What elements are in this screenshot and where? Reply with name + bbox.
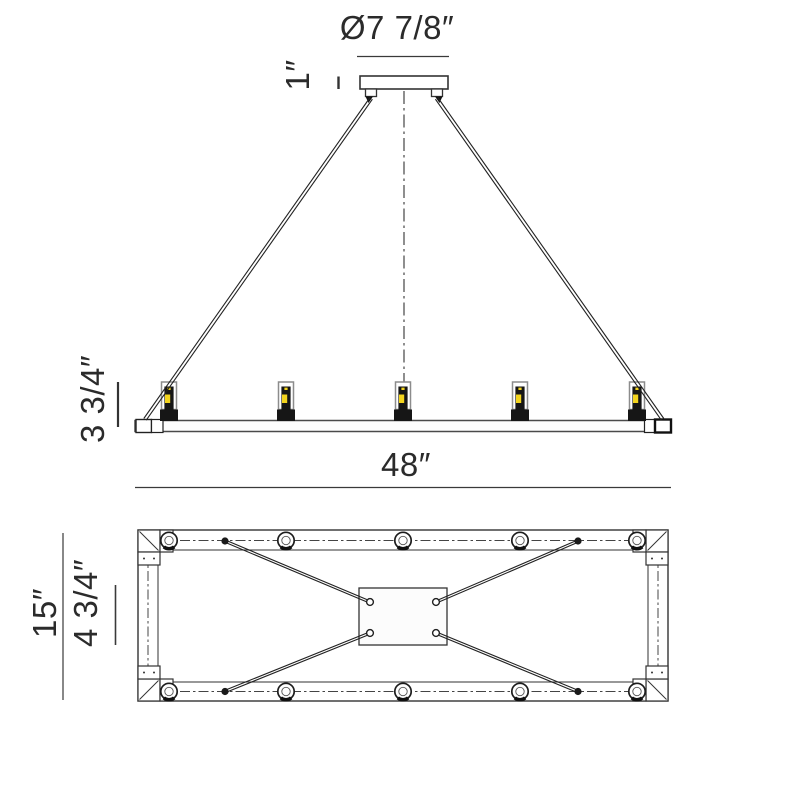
rail-anchor-dot-top-left	[221, 537, 228, 544]
end-cap-right-inner	[645, 420, 656, 433]
frame-depth-label: 15″	[26, 588, 63, 638]
grommet-top-2	[278, 532, 294, 548]
end-cap-right-outer	[655, 420, 671, 433]
grommet-bottom-2	[278, 683, 294, 699]
plate-depth-label: 4 3/4″	[67, 559, 104, 647]
lamp-4	[511, 382, 529, 421]
plate-anchor-bottom-right	[433, 630, 440, 637]
fixture-height-label: 3 3/4″	[74, 355, 111, 443]
end-cap-left-outer	[136, 420, 152, 433]
grommet-bottom-4	[512, 683, 528, 699]
technical-drawing: Ø7 7/8″ 1″ 3 3/4″	[0, 0, 800, 800]
plate-anchor-bottom-left	[367, 630, 374, 637]
grommet-top-3	[395, 532, 411, 548]
fixture-bar	[135, 421, 671, 432]
plan-view: 15″ 4 3/4″	[26, 530, 668, 701]
drawing-stage: Ø7 7/8″ 1″ 3 3/4″	[0, 0, 800, 800]
suspension-cable-right	[435, 98, 663, 421]
lamp-3	[394, 382, 412, 421]
rail-anchor-dot-bottom-right	[574, 688, 581, 695]
plate-anchor-top-left	[367, 599, 374, 606]
elevation-view: Ø7 7/8″ 1″ 3 3/4″	[74, 9, 671, 488]
canopy-height-label: 1″	[279, 59, 316, 90]
grommet-top-5	[629, 532, 645, 548]
fixture-width-label: 48″	[381, 446, 431, 483]
suspension-cable-left	[144, 98, 373, 421]
hanger-block-right	[432, 89, 443, 97]
rail-anchor-dot-bottom-left	[221, 688, 228, 695]
hanger-block-left	[366, 89, 377, 97]
end-cap-left-inner	[152, 420, 164, 433]
lamp-2	[277, 382, 295, 421]
canopy	[360, 76, 448, 89]
grommet-top-4	[512, 532, 528, 548]
grommet-bottom-3	[395, 683, 411, 699]
grommet-bottom-1	[161, 683, 177, 699]
grommet-top-1	[161, 532, 177, 548]
canopy-diameter-label: Ø7 7/8″	[340, 9, 454, 46]
plate-anchor-top-right	[433, 599, 440, 606]
grommet-bottom-5	[629, 683, 645, 699]
rail-anchor-dot-top-right	[574, 537, 581, 544]
lamp-5	[628, 382, 646, 421]
